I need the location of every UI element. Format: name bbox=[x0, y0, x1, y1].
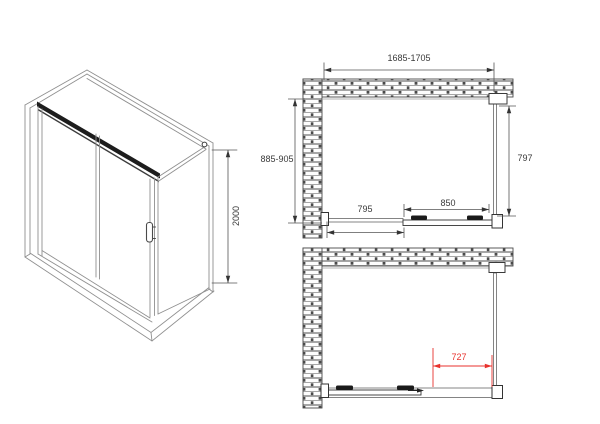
wall-bracket-icon bbox=[202, 142, 207, 147]
arrow-left-icon bbox=[404, 207, 411, 211]
end-bracket bbox=[492, 386, 503, 399]
side-glass-panel bbox=[158, 146, 210, 314]
dim-side-panel-label: 797 bbox=[517, 153, 532, 163]
dimension-height: 2000 bbox=[212, 150, 241, 283]
door-assembly-closed bbox=[321, 213, 503, 229]
roller-icon bbox=[397, 386, 414, 391]
arrow-up-icon bbox=[226, 150, 230, 157]
door-assembly-open bbox=[321, 384, 503, 399]
arrow-right-icon bbox=[397, 230, 404, 234]
brick-wall-horizontal bbox=[303, 79, 513, 97]
arrow-down-icon bbox=[293, 216, 297, 223]
roller-icon bbox=[336, 386, 353, 391]
arrow-left-icon bbox=[324, 68, 331, 72]
dimension-opening: 727 bbox=[433, 348, 492, 387]
roller-icon bbox=[411, 216, 427, 221]
dimension-side-panel: 797 bbox=[497, 106, 533, 216]
brick-wall-vertical bbox=[303, 248, 322, 408]
dim-sliding-door-label: 850 bbox=[440, 198, 455, 208]
side-panel-plan bbox=[494, 273, 497, 388]
dim-height-label: 2000 bbox=[231, 206, 241, 226]
dim-fixed-panel-label: 795 bbox=[357, 204, 372, 214]
roller-icon bbox=[467, 216, 483, 221]
isometric-view: 2000 bbox=[25, 70, 241, 341]
arrow-left-icon bbox=[327, 230, 334, 234]
arrow-down-icon bbox=[226, 276, 230, 283]
dim-overall-depth-label: 885-905 bbox=[260, 154, 293, 164]
brick-wall-horizontal bbox=[303, 248, 513, 266]
arrow-right-icon bbox=[485, 364, 492, 368]
wall-bracket-plan bbox=[489, 263, 505, 273]
arrow-right-icon bbox=[482, 207, 489, 211]
brick-wall-vertical bbox=[303, 79, 322, 238]
arrow-up-icon bbox=[507, 106, 511, 113]
arrow-right-icon bbox=[487, 68, 494, 72]
shower-tray bbox=[25, 253, 214, 341]
dim-overall-width-label: 1685-1705 bbox=[387, 53, 430, 63]
arrow-down-icon bbox=[507, 209, 511, 216]
end-bracket bbox=[492, 215, 503, 229]
wall-profile bbox=[321, 384, 329, 398]
bottom-plan-view: 727 bbox=[303, 248, 513, 408]
shower-enclosure-drawing: 2000 1685-1705 885- bbox=[0, 0, 600, 424]
dim-opening-label: 727 bbox=[451, 352, 466, 362]
wall-bracket-plan bbox=[489, 94, 507, 105]
side-panel-back-post bbox=[209, 143, 213, 292]
top-track-rail bbox=[37, 102, 160, 183]
arrow-up-icon bbox=[293, 99, 297, 106]
top-plan-view: 1685-1705 885-905 797 850 795 bbox=[260, 53, 532, 238]
arrow-left-icon bbox=[433, 364, 440, 368]
dimension-sliding-door: 850 bbox=[404, 198, 489, 217]
side-panel-plan bbox=[494, 104, 497, 220]
technical-drawing-canvas: 2000 1685-1705 885- bbox=[0, 0, 600, 424]
